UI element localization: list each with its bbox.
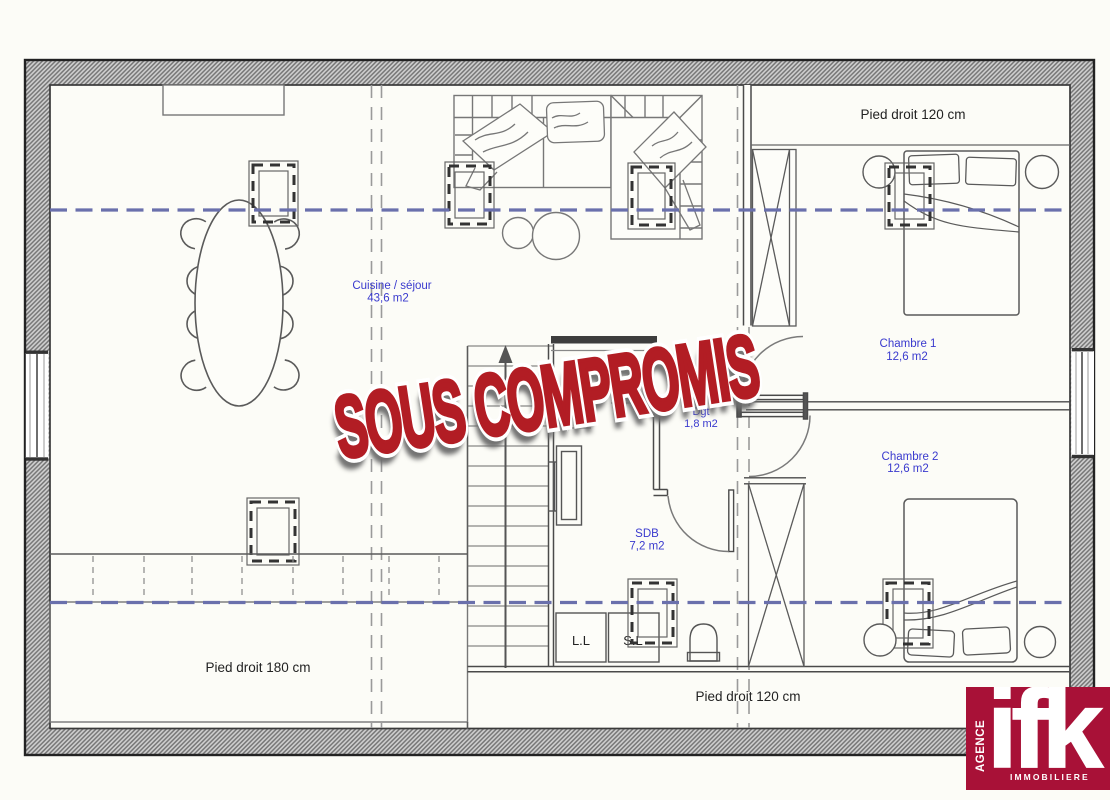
svg-text:43,6 m2: 43,6 m2 bbox=[367, 293, 409, 305]
svg-text:Pied droit 120 cm: Pied droit 120 cm bbox=[860, 107, 965, 122]
svg-text:1,8 m2: 1,8 m2 bbox=[684, 418, 718, 430]
svg-text:Dgt: Dgt bbox=[692, 406, 709, 418]
svg-text:Pied droit 120 cm: Pied droit 120 cm bbox=[695, 689, 800, 704]
svg-text:Pied droit 180 cm: Pied droit 180 cm bbox=[205, 660, 310, 675]
svg-text:Chambre 1: Chambre 1 bbox=[880, 338, 937, 350]
svg-text:12,6 m2: 12,6 m2 bbox=[886, 351, 928, 363]
svg-text:7,2 m2: 7,2 m2 bbox=[629, 541, 664, 553]
svg-text:12,6 m2: 12,6 m2 bbox=[887, 463, 929, 475]
svg-text:Chambre 2: Chambre 2 bbox=[882, 451, 939, 463]
svg-text:L.L: L.L bbox=[572, 633, 590, 648]
svg-text:SDB: SDB bbox=[635, 528, 659, 540]
svg-text:Cuisine / séjour: Cuisine / séjour bbox=[352, 280, 431, 292]
